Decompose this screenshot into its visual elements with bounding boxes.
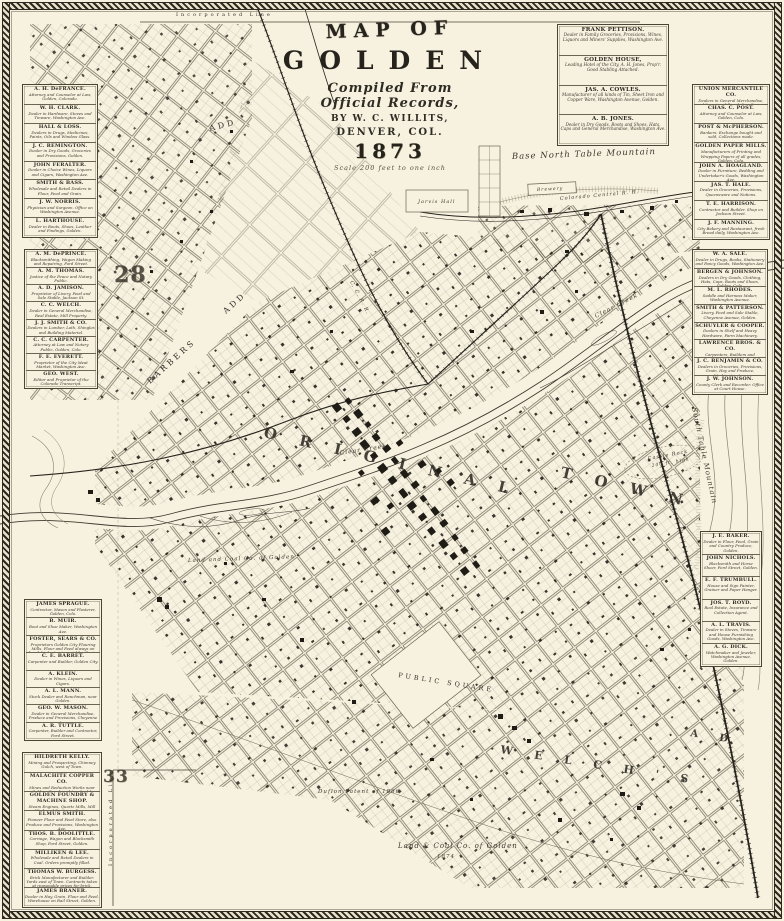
directory-entry: A. B. JONES. Dealer in Dry Goods, Boots … bbox=[559, 115, 667, 144]
directory-entry-desc: Dealer in General Merchandise, Real Esta… bbox=[27, 309, 95, 318]
map-label-jarvis-hall: Jarvis Hall bbox=[417, 199, 456, 205]
directory-entry: E. F. TRUMBULL. House and Sign Painter, … bbox=[702, 577, 760, 599]
directory-entry: FOSTER, SEARS & CO. Proprietors Golden C… bbox=[26, 636, 100, 653]
title-year: 1873 bbox=[262, 140, 518, 162]
directory-entry-desc: Dealer in Dry Goods, Groceries and Provi… bbox=[25, 149, 95, 158]
directory-entry: J. C. BENJAMIN & CO. Dealers in Grocerie… bbox=[694, 358, 766, 376]
directory-entry-desc: Dealer in Hardware, Stoves and Tinware, … bbox=[25, 112, 95, 121]
directory-entry-desc: Livery, Feed and Sale Stable, Cheyenne A… bbox=[695, 311, 765, 320]
directory-box-left-3: JAMES SPRAGUE. Contractor, Mason and Pla… bbox=[24, 599, 102, 741]
directory-entry: A. G. DICK. Watchmaker and Jeweler, Wash… bbox=[702, 644, 760, 665]
directory-entry-desc: Saddle and Harness Maker, Washington Ave… bbox=[695, 294, 765, 303]
directory-entry: JAMES BRANER. Dealer in Hay, Grain, Flou… bbox=[24, 888, 100, 906]
directory-entry: C. C. CARPENTER. Attorney at Law and Not… bbox=[26, 337, 96, 354]
directory-entry: A. M. DePRINCE. Blacksmithing, Wagon Mak… bbox=[26, 251, 96, 268]
directory-entry-desc: Bankers. Exchange bought and sold, Colle… bbox=[695, 131, 767, 140]
directory-entry-desc: Contractor and Builder. Shop on Jackson … bbox=[695, 208, 767, 217]
directory-entry-desc: Dealers in Shelf and Heavy Hardware, Far… bbox=[695, 329, 765, 338]
directory-entry: THOS. B. DOOLITTLE. Carriage, Wagon and … bbox=[24, 831, 100, 850]
directory-entry-desc: Dealers in Groceries, Provisions, Grain,… bbox=[695, 365, 765, 376]
directory-entry: THOMAS W. BURGESS. Brick Manufacturer an… bbox=[24, 869, 100, 888]
directory-entry: GEO. W. MASON. Dealer in General Merchan… bbox=[26, 705, 100, 722]
directory-entry: W. H. CLARK. Dealer in Hardware, Stoves … bbox=[24, 105, 96, 124]
directory-box-left-4: HILDRETH KELLY. Mining and Prospecting, … bbox=[22, 752, 102, 908]
map-label-section-28: 28 bbox=[114, 262, 147, 288]
directory-entry-desc: House and Sign Painter, Grainer and Pape… bbox=[703, 584, 759, 593]
directory-entry: JOHN NICHOLS. Blacksmith and Horse Shoer… bbox=[702, 555, 760, 577]
directory-entry-desc: Justice of the Peace and Notary Public. bbox=[27, 275, 95, 284]
directory-entry: SCHUYLER & COOPER. Dealers in Shelf and … bbox=[694, 323, 766, 341]
directory-entry-desc: Dealer in Furniture, Bedding and Underta… bbox=[695, 169, 767, 181]
directory-entry: GOLDEN HOUSE, Leading Hotel of the City,… bbox=[559, 56, 667, 86]
directory-entry-desc: Blacksmith and Horse Shoer, Ford Street,… bbox=[703, 562, 759, 571]
title-records: Official Records, bbox=[262, 97, 518, 111]
directory-entry-desc: Dealer in Boots, Shoes, Leather and Find… bbox=[25, 225, 95, 234]
map-label-incorporated-top: Incorporated Line bbox=[176, 12, 273, 18]
directory-entry: A. M. THOMAS. Justice of the Peace and N… bbox=[26, 268, 96, 285]
directory-entry: JOS. T. BOYD. Real Estate, Insurance and… bbox=[702, 600, 760, 622]
directory-entry: HALL & LOSS. Dealers in Drugs, Medicines… bbox=[24, 124, 96, 143]
map-label-land-coal-s: Land & Coal Co. of Golden bbox=[397, 842, 518, 850]
directory-entry-desc: Dealers in Lumber, Lath, Shingles and Bu… bbox=[27, 326, 95, 335]
directory-entry-name: UNION MERCANTILE CO. bbox=[695, 87, 767, 99]
directory-entry: A. D. JAMISON. Proprietor of Livery, Fee… bbox=[26, 285, 96, 302]
directory-entry: A. R. TUTTLE. Carpenter, Builder and Con… bbox=[26, 723, 100, 739]
directory-entry-desc: Steam Engines, Quartz Mills, Mill Work a… bbox=[25, 805, 99, 812]
directory-entry: JAS. A. COWLES. Manufacturer of all kind… bbox=[559, 86, 667, 116]
directory-entry-desc: Dealer in Flour, Feed, Grain and Country… bbox=[703, 540, 759, 553]
directory-entry-desc: Proprietors Golden City Flouring Mills. … bbox=[27, 643, 99, 654]
map-label-land-coal-s-year: 1874 bbox=[437, 854, 455, 860]
map-label-duflon-patent: Duflon Patent of 1866 bbox=[317, 789, 400, 795]
title-author: BY W. C. WILLITS, bbox=[262, 115, 518, 125]
directory-entry: LAWRENCE BROS. & CO. Carpenters, Builder… bbox=[694, 340, 766, 358]
directory-entry: JAS. T. HALE. Dealer in Groceries, Provi… bbox=[694, 182, 768, 201]
directory-entry: J. W. JOHNSON. County Clerk and Recorder… bbox=[694, 376, 766, 393]
directory-entry-desc: Dealer in Wines, Liquors and Cigars. bbox=[27, 677, 99, 686]
directory-entry: BERGEN & JOHNSON. Dealers in Dry Goods, … bbox=[694, 269, 766, 287]
title-scale: Scale 200 feet to one inch bbox=[262, 165, 518, 172]
directory-box-right-2: W. A. SALE. Dealer in Drugs, Books, Stat… bbox=[692, 249, 768, 395]
directory-entry-desc: Physician and Surgeon. Office on Washing… bbox=[25, 206, 95, 215]
directory-entry-desc: Wholesale and Retail Dealers in Flour, F… bbox=[25, 187, 95, 196]
directory-entry-desc: Leading Hotel of the City, A. H. Jones, … bbox=[560, 63, 666, 72]
directory-entry: C. E. BARRET. Carpenter and Builder, Gol… bbox=[26, 653, 100, 670]
title-block: MAP OF GOLDEN Compiled From Official Rec… bbox=[262, 20, 518, 172]
directory-entry-desc: City Bakery and Restaurant, fresh Bread … bbox=[695, 227, 767, 236]
directory-entry: GOLDEN PAPER MILLS. Manufacturers of Pri… bbox=[694, 143, 768, 162]
directory-entry-desc: Proprietor of the City Meat Market, Wash… bbox=[27, 361, 95, 370]
directory-entry: W. A. SALE. Dealer in Drugs, Books, Stat… bbox=[694, 251, 766, 269]
directory-entry-desc: Carpenter, Builder and Contractor, Ford … bbox=[27, 729, 99, 738]
map-label-north-table: Base North Table Mountain bbox=[511, 147, 656, 162]
directory-entry-desc: Attorney and Counselor at Law, Golden, C… bbox=[25, 93, 95, 102]
directory-box-top-right: FRANK PETTISON. Dealer in Family Groceri… bbox=[557, 24, 669, 146]
directory-entry: MALACHITE COPPER CO. Mines and Reduction… bbox=[24, 773, 100, 792]
directory-entry-desc: Dealer in Dry Goods, Boots and Shoes, Ha… bbox=[560, 123, 666, 132]
directory-entry: JOHN A. HOAGLAND. Dealer in Furniture, B… bbox=[694, 163, 768, 182]
directory-entry-desc: Attorney and Counselor at Law, Golden, C… bbox=[695, 112, 767, 121]
directory-entry: A. L. MANN. Stock Dealer and Ranchman, n… bbox=[26, 688, 100, 705]
directory-entry-desc: Dealer in General Merchandise, Produce a… bbox=[27, 712, 99, 723]
directory-entry: JAMES SPRAGUE. Contractor, Mason and Pla… bbox=[26, 601, 100, 618]
directory-entry-desc: Mines and Reduction Works near Golden. O… bbox=[25, 786, 99, 793]
directory-box-left-1: A. H. DeFRANCE. Attorney and Counselor a… bbox=[22, 84, 98, 238]
map-label-incorporated-left: Incorporated Line bbox=[108, 769, 114, 866]
directory-entry: FRANK PETTISON. Dealer in Family Groceri… bbox=[559, 26, 667, 56]
directory-entry-desc: Stock Dealer and Ranchman, near Golden. bbox=[27, 695, 99, 704]
directory-entry-desc: Wholesale and Retail Dealers in Coal. Or… bbox=[25, 856, 99, 865]
directory-entry-desc: Editor and Proprietor of the Colorado Tr… bbox=[27, 378, 95, 387]
map-label-section-33: 33 bbox=[103, 767, 129, 787]
title-city: GOLDEN bbox=[262, 47, 518, 75]
directory-entry: J. F. MANNING. City Bakery and Restauran… bbox=[694, 220, 768, 238]
title-compiled: Compiled From bbox=[262, 82, 518, 96]
title-place: DENVER, COL. bbox=[262, 127, 518, 138]
directory-box-right-3: J. E. BAKER. Dealer in Flour, Feed, Grai… bbox=[700, 531, 762, 667]
directory-entry: J. E. BAKER. Dealer in Flour, Feed, Grai… bbox=[702, 533, 760, 555]
directory-entry-desc: Dealers in Drugs, Medicines, Paints, Oil… bbox=[25, 131, 95, 140]
directory-entry-desc: Manufacturer of all kinds of Tin, Sheet … bbox=[560, 93, 666, 102]
map-label-barbers-add: ADD bbox=[221, 290, 248, 316]
directory-entry-desc: Mining and Prospecting, Chimney Gulch, w… bbox=[25, 761, 99, 770]
directory-entry: HILDRETH KELLY. Mining and Prospecting, … bbox=[24, 754, 100, 773]
directory-entry-desc: Manufacturers of Printing and Wrapping P… bbox=[695, 150, 767, 162]
directory-entry-desc: Carriage, Wagon and Blacksmith Shop, For… bbox=[25, 837, 99, 846]
directory-entry-desc: Dealers in General Merchandise, Miners' … bbox=[695, 99, 767, 106]
directory-entry-name: MALACHITE COPPER CO. bbox=[25, 774, 99, 786]
directory-entry-desc: Attorney at Law and Notary Public, Golde… bbox=[27, 343, 95, 352]
directory-entry-desc: Carpenter and Builder, Golden City. bbox=[27, 660, 99, 664]
directory-entry-desc: Blacksmithing, Wagon Making and Repairin… bbox=[27, 258, 95, 267]
directory-entry-desc: Pioneer Flour and Feed Store, also Produ… bbox=[25, 818, 99, 830]
directory-entry-desc: Dealer in Family Groceries, Provisions, … bbox=[560, 33, 666, 42]
directory-entry-desc: Dealer in Drugs, Books, Stationery and F… bbox=[695, 258, 765, 267]
directory-entry: M. L. RHODES. Saddle and Harness Maker, … bbox=[694, 287, 766, 305]
directory-entry: F. E. EVERETT. Proprietor of the City Me… bbox=[26, 354, 96, 371]
directory-entry: UNION MERCANTILE CO. Dealers in General … bbox=[694, 86, 768, 105]
directory-entry-desc: Brick Manufacturer and Builder. Yards ea… bbox=[25, 876, 99, 888]
directory-entry: POST & McPHERSON. Bankers. Exchange boug… bbox=[694, 124, 768, 143]
directory-entry: ELMUS SMITH. Pioneer Flour and Feed Stor… bbox=[24, 811, 100, 830]
directory-entry-desc: Dealer in Hay, Grain, Flour and Feed. Wa… bbox=[25, 895, 99, 904]
directory-entry-desc: Contractor, Mason and Plasterer, Golden,… bbox=[27, 608, 99, 617]
directory-entry-desc: Dealer in Choice Wines, Liquors and Ciga… bbox=[25, 168, 95, 177]
directory-entry: CHAS. C. POST. Attorney and Counselor at… bbox=[694, 105, 768, 124]
directory-entry: B. MUIR. Boot and Shoe Maker, Washington… bbox=[26, 618, 100, 635]
directory-entry: SMITH & BASS. Wholesale and Retail Deale… bbox=[24, 180, 96, 199]
title-map-of: MAP OF bbox=[262, 16, 519, 46]
directory-entry: J. W. NORRIS. Physician and Surgeon. Off… bbox=[24, 199, 96, 218]
directory-entry: JOHN FERALTER. Dealer in Choice Wines, L… bbox=[24, 162, 96, 181]
directory-entry-desc: Proprietor of Livery, Feed and Sale Stab… bbox=[27, 292, 95, 301]
directory-box-right-1: UNION MERCANTILE CO. Dealers in General … bbox=[692, 84, 770, 240]
directory-entry: GEO. WEST. Editor and Proprietor of the … bbox=[26, 371, 96, 387]
directory-entry: MILLIKEN & LEE. Wholesale and Retail Dea… bbox=[24, 850, 100, 869]
directory-entry: A. KLEIN. Dealer in Wines, Liquors and C… bbox=[26, 671, 100, 688]
directory-entry: T. E. HARRISON. Contractor and Builder. … bbox=[694, 201, 768, 220]
directory-entry: GOLDEN FOUNDRY & MACHINE SHOP. Steam Eng… bbox=[24, 792, 100, 811]
directory-entry: C. C. WELCH. Dealer in General Merchandi… bbox=[26, 302, 96, 319]
directory-entry: SMITH & PATTERSON. Livery, Feed and Sale… bbox=[694, 305, 766, 323]
directory-entry-desc: Dealer in Groceries, Provisions, Queensw… bbox=[695, 188, 767, 197]
directory-entry: A. L. TRAVIS. Dealer in Stoves, Tinware … bbox=[702, 622, 760, 644]
directory-box-left-2: A. M. DePRINCE. Blacksmithing, Wagon Mak… bbox=[24, 249, 98, 389]
directory-entry-desc: Real Estate, Insurance and Collection Ag… bbox=[703, 606, 759, 615]
directory-entry: J. C. REMINGTON. Dealer in Dry Goods, Gr… bbox=[24, 143, 96, 162]
directory-entry-desc: Boot and Shoe Maker, Washington Ave. bbox=[27, 625, 99, 634]
directory-entry-desc: Watchmaker and Jeweler, Washington Avenu… bbox=[703, 651, 759, 664]
directory-entry: J. J. SMITH & CO. Dealers in Lumber, Lat… bbox=[26, 320, 96, 337]
directory-entry-desc: Dealers in Dry Goods, Clothing, Hats, Ca… bbox=[695, 276, 765, 287]
directory-entry-desc: Dealer in Stoves, Tinware and House Furn… bbox=[703, 628, 759, 641]
directory-entry: L. HARTHOUSE. Dealer in Boots, Shoes, Le… bbox=[24, 218, 96, 236]
directory-entry: A. H. DeFRANCE. Attorney and Counselor a… bbox=[24, 86, 96, 105]
directory-entry-desc: County Clerk and Recorder. Office at Cou… bbox=[695, 383, 765, 392]
map-sheet: Base North Table MountainO R I G I N A L… bbox=[0, 0, 784, 921]
